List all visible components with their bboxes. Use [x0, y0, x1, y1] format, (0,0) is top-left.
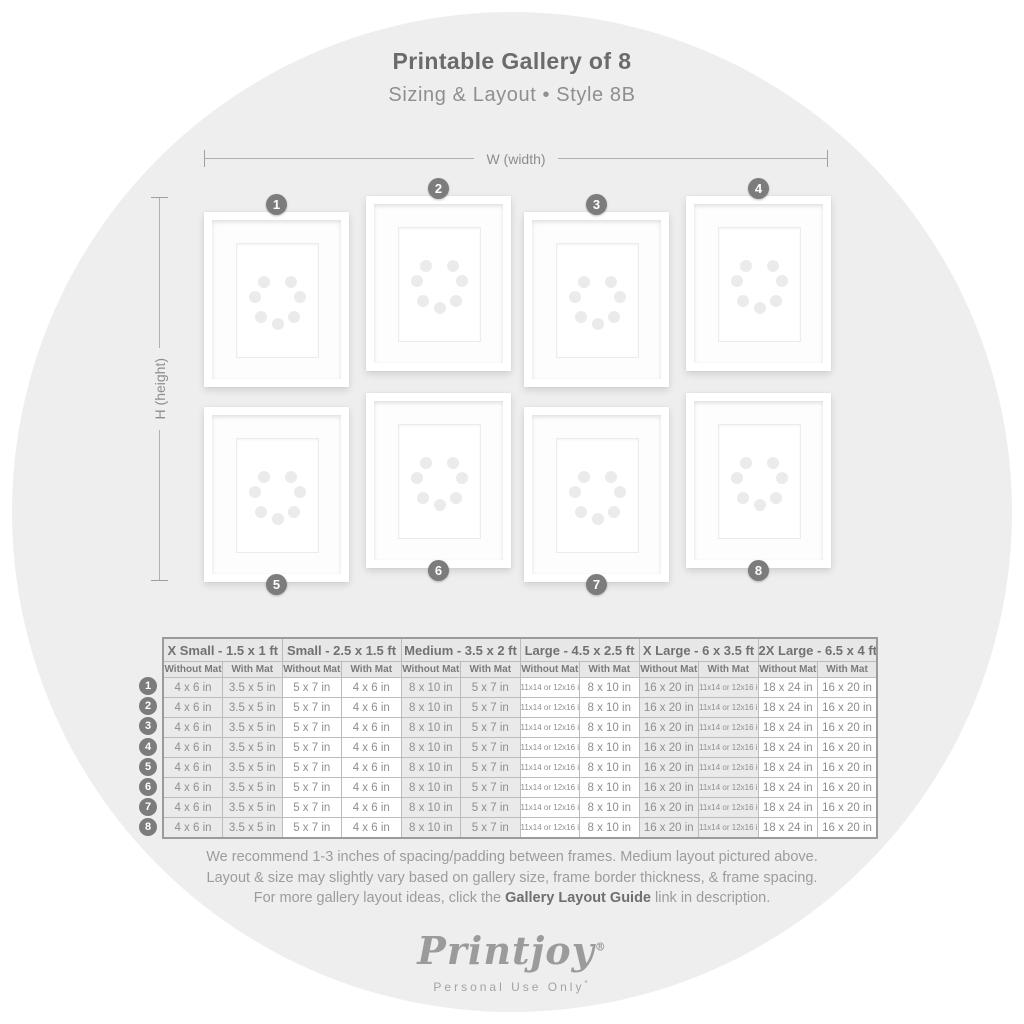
- placeholder-dots-art: [398, 424, 481, 539]
- size-cell: 4 x 6 in: [163, 798, 223, 818]
- dot-icon: [288, 506, 300, 518]
- size-cell: 4 x 6 in: [163, 758, 223, 778]
- dot-icon: [740, 457, 752, 469]
- size-cell: 5 x 7 in: [282, 718, 342, 738]
- size-cell: 3.5 x 5 in: [223, 798, 283, 818]
- size-cell: 11x14 or 12x16 in: [699, 718, 759, 738]
- table-row: 4 x 6 in3.5 x 5 in5 x 7 in4 x 6 in8 x 10…: [163, 778, 877, 798]
- dot-icon: [456, 275, 468, 287]
- height-dimension-line: H (height): [151, 197, 168, 581]
- size-cell: 4 x 6 in: [163, 698, 223, 718]
- dot-icon: [249, 291, 261, 303]
- tagline-mark: *: [584, 979, 590, 988]
- size-cell: 11x14 or 12x16 in: [520, 678, 580, 698]
- size-cell: 16 x 20 in: [639, 818, 699, 839]
- with-mat-header: With Mat: [461, 662, 521, 678]
- size-cell: 5 x 7 in: [282, 738, 342, 758]
- size-cell: 4 x 6 in: [163, 678, 223, 698]
- size-cell: 8 x 10 in: [401, 798, 461, 818]
- size-cell: 11x14 or 12x16 in: [520, 798, 580, 818]
- size-group-header: Small - 2.5 x 1.5 ft: [282, 638, 401, 662]
- size-cell: 5 x 7 in: [461, 778, 521, 798]
- size-table: X Small - 1.5 x 1 ftSmall - 2.5 x 1.5 ft…: [162, 637, 878, 839]
- dot-icon: [456, 472, 468, 484]
- size-cell: 18 x 24 in: [758, 718, 818, 738]
- size-cell: 4 x 6 in: [163, 818, 223, 839]
- logo-tagline: Personal Use Only*: [0, 979, 1024, 994]
- dot-icon: [754, 499, 766, 511]
- size-cell: 16 x 20 in: [818, 818, 878, 839]
- dot-icon: [614, 486, 626, 498]
- size-cell: 16 x 20 in: [639, 798, 699, 818]
- dot-icon: [578, 276, 590, 288]
- size-cell: 8 x 10 in: [401, 818, 461, 839]
- width-label: W (width): [474, 151, 557, 167]
- size-cell: 11x14 or 12x16 in: [699, 778, 759, 798]
- table-row: 4 x 6 in3.5 x 5 in5 x 7 in4 x 6 in8 x 10…: [163, 738, 877, 758]
- size-cell: 4 x 6 in: [342, 678, 402, 698]
- size-cell: 3.5 x 5 in: [223, 778, 283, 798]
- footer-text: link in description.: [651, 890, 770, 906]
- dimension-line-segment: [558, 158, 827, 159]
- dot-icon: [434, 302, 446, 314]
- dot-icon: [776, 472, 788, 484]
- dot-icon: [614, 291, 626, 303]
- dot-icon: [578, 471, 590, 483]
- size-cell: 8 x 10 in: [401, 738, 461, 758]
- frame-mat: [374, 401, 503, 560]
- frame-1: [204, 212, 349, 387]
- size-cell: 4 x 6 in: [163, 718, 223, 738]
- dot-icon: [770, 492, 782, 504]
- size-cell: 18 x 24 in: [758, 758, 818, 778]
- dot-icon: [272, 513, 284, 525]
- dot-icon: [450, 492, 462, 504]
- frame-badge-5: 5: [266, 574, 287, 595]
- size-cell: 8 x 10 in: [580, 778, 640, 798]
- without-mat-header: Without Mat: [639, 662, 699, 678]
- dot-icon: [575, 506, 587, 518]
- size-cell: 16 x 20 in: [818, 778, 878, 798]
- frame-badge-6: 6: [428, 560, 449, 581]
- size-cell: 5 x 7 in: [461, 678, 521, 698]
- placeholder-dots-art: [236, 438, 319, 553]
- frame-2: [366, 196, 511, 371]
- with-mat-header: With Mat: [342, 662, 402, 678]
- size-cell: 8 x 10 in: [401, 778, 461, 798]
- dot-icon: [417, 492, 429, 504]
- table-row: 4 x 6 in3.5 x 5 in5 x 7 in4 x 6 in8 x 10…: [163, 818, 877, 839]
- with-mat-header: With Mat: [818, 662, 878, 678]
- without-mat-header: Without Mat: [163, 662, 223, 678]
- size-cell: 8 x 10 in: [580, 758, 640, 778]
- footer-text: For more gallery layout ideas, click the: [254, 890, 505, 906]
- dot-icon: [737, 492, 749, 504]
- dot-icon: [294, 291, 306, 303]
- table-row: 4 x 6 in3.5 x 5 in5 x 7 in4 x 6 in8 x 10…: [163, 758, 877, 778]
- size-cell: 11x14 or 12x16 in: [699, 678, 759, 698]
- size-cell: 4 x 6 in: [342, 818, 402, 839]
- registered-mark: ®: [595, 940, 607, 953]
- gallery-layout-guide-link-label: Gallery Layout Guide: [505, 890, 651, 906]
- with-mat-header: With Mat: [580, 662, 640, 678]
- dot-icon: [776, 275, 788, 287]
- dot-icon: [605, 276, 617, 288]
- footer-line: We recommend 1-3 inches of spacing/paddi…: [112, 847, 912, 868]
- dot-icon: [575, 311, 587, 323]
- frame-badge-3: 3: [586, 194, 607, 215]
- table-row: 4 x 6 in3.5 x 5 in5 x 7 in4 x 6 in8 x 10…: [163, 678, 877, 698]
- size-cell: 5 x 7 in: [282, 798, 342, 818]
- placeholder-dots-art: [556, 243, 639, 358]
- dimension-line-segment: [205, 158, 474, 159]
- without-mat-header: Without Mat: [758, 662, 818, 678]
- frame-badge-8: 8: [748, 560, 769, 581]
- footer-line: For more gallery layout ideas, click the…: [112, 888, 912, 909]
- placeholder-dots-art: [718, 424, 801, 539]
- size-cell: 8 x 10 in: [580, 798, 640, 818]
- size-group-header: X Small - 1.5 x 1 ft: [163, 638, 282, 662]
- frame-mat: [694, 204, 823, 363]
- dot-icon: [767, 457, 779, 469]
- size-cell: 3.5 x 5 in: [223, 738, 283, 758]
- size-cell: 11x14 or 12x16 in: [520, 698, 580, 718]
- size-cell: 16 x 20 in: [818, 798, 878, 818]
- dot-icon: [450, 295, 462, 307]
- placeholder-dots-art: [556, 438, 639, 553]
- brand-logo: Printjoy® Personal Use Only*: [0, 928, 1024, 994]
- frame-badge-4: 4: [748, 178, 769, 199]
- size-cell: 3.5 x 5 in: [223, 718, 283, 738]
- size-group-header: X Large - 6 x 3.5 ft: [639, 638, 758, 662]
- frame-6: [366, 393, 511, 568]
- size-cell: 5 x 7 in: [282, 818, 342, 839]
- size-cell: 11x14 or 12x16 in: [520, 718, 580, 738]
- size-cell: 4 x 6 in: [342, 758, 402, 778]
- size-cell: 16 x 20 in: [818, 718, 878, 738]
- size-cell: 3.5 x 5 in: [223, 818, 283, 839]
- size-cell: 11x14 or 12x16 in: [699, 818, 759, 839]
- size-cell: 16 x 20 in: [818, 698, 878, 718]
- size-cell: 8 x 10 in: [580, 698, 640, 718]
- size-cell: 4 x 6 in: [342, 778, 402, 798]
- size-cell: 4 x 6 in: [163, 778, 223, 798]
- size-cell: 8 x 10 in: [580, 718, 640, 738]
- dot-icon: [767, 260, 779, 272]
- size-cell: 16 x 20 in: [818, 738, 878, 758]
- size-cell: 11x14 or 12x16 in: [699, 758, 759, 778]
- size-cell: 8 x 10 in: [580, 678, 640, 698]
- frame-mat: [212, 415, 341, 574]
- size-cell: 3.5 x 5 in: [223, 698, 283, 718]
- size-cell: 5 x 7 in: [461, 798, 521, 818]
- size-cell: 16 x 20 in: [639, 778, 699, 798]
- size-cell: 5 x 7 in: [461, 738, 521, 758]
- dot-icon: [608, 506, 620, 518]
- dimension-tick-bottom: [151, 580, 168, 581]
- dot-icon: [249, 486, 261, 498]
- size-cell: 3.5 x 5 in: [223, 758, 283, 778]
- dimension-line-segment: [159, 430, 160, 580]
- footer-line: Layout & size may slightly vary based on…: [112, 868, 912, 889]
- dot-icon: [417, 295, 429, 307]
- without-mat-header: Without Mat: [282, 662, 342, 678]
- frame-8: [686, 393, 831, 568]
- size-cell: 18 x 24 in: [758, 798, 818, 818]
- dot-icon: [285, 471, 297, 483]
- dot-icon: [731, 472, 743, 484]
- size-group-header: Medium - 3.5 x 2 ft: [401, 638, 520, 662]
- frame-5: [204, 407, 349, 582]
- dot-icon: [569, 486, 581, 498]
- size-cell: 5 x 7 in: [461, 818, 521, 839]
- size-cell: 5 x 7 in: [461, 698, 521, 718]
- dot-icon: [731, 275, 743, 287]
- table-row: 4 x 6 in3.5 x 5 in5 x 7 in4 x 6 in8 x 10…: [163, 698, 877, 718]
- size-cell: 18 x 24 in: [758, 678, 818, 698]
- size-cell: 8 x 10 in: [401, 698, 461, 718]
- table-row: 4 x 6 in3.5 x 5 in5 x 7 in4 x 6 in8 x 10…: [163, 718, 877, 738]
- dot-icon: [258, 471, 270, 483]
- row-badge-1: 1: [139, 677, 157, 695]
- size-cell: 16 x 20 in: [639, 718, 699, 738]
- page-title: Printable Gallery of 8: [0, 48, 1024, 75]
- height-label: H (height): [152, 348, 168, 429]
- size-cell: 5 x 7 in: [461, 758, 521, 778]
- dot-icon: [420, 457, 432, 469]
- size-cell: 16 x 20 in: [818, 758, 878, 778]
- size-group-header: Large - 4.5 x 2.5 ft: [520, 638, 639, 662]
- dot-icon: [255, 311, 267, 323]
- logo-wordmark: Printjoy®: [417, 928, 606, 973]
- size-cell: 11x14 or 12x16 in: [520, 778, 580, 798]
- size-cell: 8 x 10 in: [401, 678, 461, 698]
- dot-icon: [288, 311, 300, 323]
- frame-7: [524, 407, 669, 582]
- dot-icon: [754, 302, 766, 314]
- dot-icon: [737, 295, 749, 307]
- size-cell: 11x14 or 12x16 in: [699, 798, 759, 818]
- dot-icon: [447, 457, 459, 469]
- size-cell: 8 x 10 in: [401, 718, 461, 738]
- dot-icon: [569, 291, 581, 303]
- dot-icon: [770, 295, 782, 307]
- size-cell: 5 x 7 in: [282, 678, 342, 698]
- size-cell: 11x14 or 12x16 in: [520, 758, 580, 778]
- footer-notes: We recommend 1-3 inches of spacing/paddi…: [112, 847, 912, 909]
- frame-mat: [532, 220, 661, 379]
- size-cell: 5 x 7 in: [282, 758, 342, 778]
- size-cell: 8 x 10 in: [580, 738, 640, 758]
- dot-icon: [592, 513, 604, 525]
- dot-icon: [740, 260, 752, 272]
- size-cell: 11x14 or 12x16 in: [699, 698, 759, 718]
- dot-icon: [434, 499, 446, 511]
- frame-3: [524, 212, 669, 387]
- size-group-header: 2X Large - 6.5 x 4 ft: [758, 638, 877, 662]
- row-badge-5: 5: [139, 758, 157, 776]
- frame-mat: [212, 220, 341, 379]
- dot-icon: [447, 260, 459, 272]
- without-mat-header: Without Mat: [401, 662, 461, 678]
- size-cell: 8 x 10 in: [401, 758, 461, 778]
- dot-icon: [608, 311, 620, 323]
- width-dimension-line: W (width): [204, 150, 828, 167]
- size-cell: 4 x 6 in: [342, 718, 402, 738]
- with-mat-header: With Mat: [223, 662, 283, 678]
- size-cell: 16 x 20 in: [639, 738, 699, 758]
- dot-icon: [294, 486, 306, 498]
- dot-icon: [255, 506, 267, 518]
- frame-badge-1: 1: [266, 194, 287, 215]
- size-cell: 4 x 6 in: [342, 798, 402, 818]
- dot-icon: [592, 318, 604, 330]
- dot-icon: [285, 276, 297, 288]
- row-badge-6: 6: [139, 778, 157, 796]
- dot-icon: [258, 276, 270, 288]
- dot-icon: [605, 471, 617, 483]
- frame-mat: [374, 204, 503, 363]
- size-cell: 16 x 20 in: [639, 698, 699, 718]
- placeholder-dots-art: [718, 227, 801, 342]
- size-cell: 16 x 20 in: [639, 758, 699, 778]
- frame-mat: [694, 401, 823, 560]
- size-cell: 18 x 24 in: [758, 778, 818, 798]
- without-mat-header: Without Mat: [520, 662, 580, 678]
- size-cell: 5 x 7 in: [282, 778, 342, 798]
- dimension-tick-right: [827, 150, 828, 167]
- size-cell: 4 x 6 in: [342, 698, 402, 718]
- size-cell: 5 x 7 in: [282, 698, 342, 718]
- size-cell: 16 x 20 in: [818, 678, 878, 698]
- frame-badge-7: 7: [586, 574, 607, 595]
- dot-icon: [411, 275, 423, 287]
- size-cell: 16 x 20 in: [639, 678, 699, 698]
- frame-badge-2: 2: [428, 178, 449, 199]
- frame-4: [686, 196, 831, 371]
- size-cell: 11x14 or 12x16 in: [520, 738, 580, 758]
- table-row: 4 x 6 in3.5 x 5 in5 x 7 in4 x 6 in8 x 10…: [163, 798, 877, 818]
- row-badge-4: 4: [139, 738, 157, 756]
- size-cell: 3.5 x 5 in: [223, 678, 283, 698]
- size-cell: 11x14 or 12x16 in: [520, 818, 580, 839]
- size-cell: 18 x 24 in: [758, 818, 818, 839]
- with-mat-header: With Mat: [699, 662, 759, 678]
- size-cell: 11x14 or 12x16 in: [699, 738, 759, 758]
- size-cell: 18 x 24 in: [758, 738, 818, 758]
- size-cell: 4 x 6 in: [163, 738, 223, 758]
- page-subtitle: Sizing & Layout • Style 8B: [0, 84, 1024, 107]
- dot-icon: [411, 472, 423, 484]
- dot-icon: [272, 318, 284, 330]
- placeholder-dots-art: [236, 243, 319, 358]
- placeholder-dots-art: [398, 227, 481, 342]
- size-cell: 4 x 6 in: [342, 738, 402, 758]
- dimension-line-segment: [159, 198, 160, 348]
- size-cell: 8 x 10 in: [580, 818, 640, 839]
- size-cell: 18 x 24 in: [758, 698, 818, 718]
- dot-icon: [420, 260, 432, 272]
- size-cell: 5 x 7 in: [461, 718, 521, 738]
- frame-mat: [532, 415, 661, 574]
